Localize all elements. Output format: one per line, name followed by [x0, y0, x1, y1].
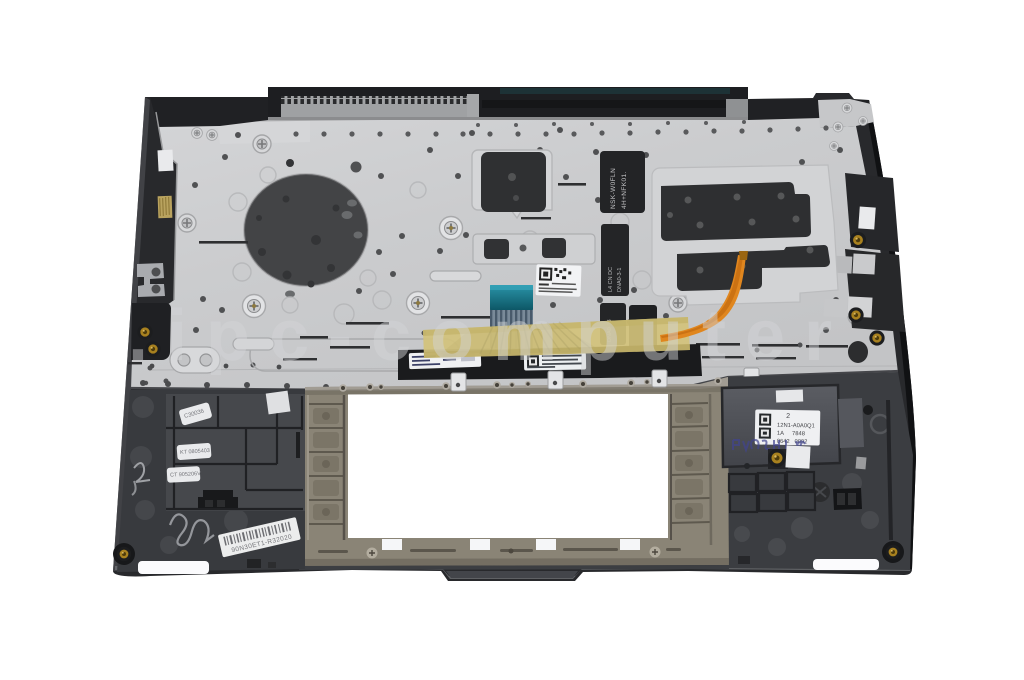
svg-text:DNA0-3-1: DNA0-3-1	[617, 268, 623, 292]
svg-text:12N1-A0A0Q1: 12N1-A0A0Q1	[777, 423, 815, 430]
svg-text:L4 CN DC: L4 CN DC	[608, 267, 614, 292]
svg-text:.ipc-computer: .ipc-computer	[128, 296, 851, 376]
svg-text:4H+NFK01.: 4H+NFK01.	[621, 171, 628, 209]
svg-text:NSK-W0FLN: NSK-W0FLN	[610, 168, 617, 209]
svg-text:1A 7848: 1A 7848	[777, 431, 805, 437]
svg-text:2: 2	[786, 413, 790, 420]
